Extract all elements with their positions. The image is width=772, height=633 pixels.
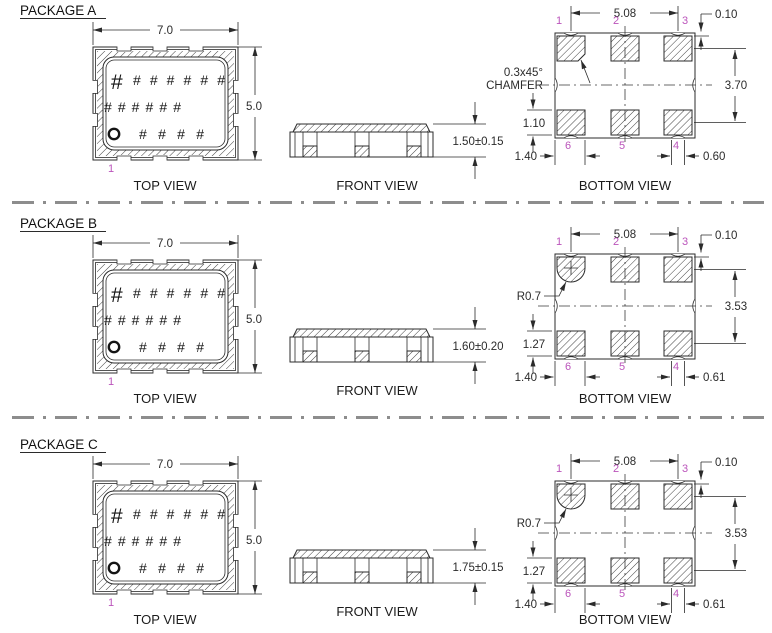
marking-row2: # # # # # # (104, 312, 181, 328)
dim-edge-offset: 0.10 (715, 457, 737, 469)
lid-front (293, 124, 430, 132)
pin-label-3: 3 (682, 15, 688, 27)
package-b-section: PACKAGE B 7.0 5.0 (0, 205, 772, 420)
front-view: 1.60±0.20 FRONT VIEW (290, 307, 504, 398)
dim-pad-height: 1.10 (523, 118, 545, 130)
pin-label-5: 5 (619, 361, 625, 373)
package-title: PACKAGE A (20, 3, 96, 18)
dim-body-height: 5.0 (246, 101, 262, 113)
pin-label-1: 1 (556, 15, 562, 27)
top-view-caption: TOP VIEW (133, 612, 197, 627)
front-view-caption: FRONT VIEW (336, 178, 418, 193)
pin1-label: 1 (108, 376, 114, 388)
dim-edge-offset: 0.10 (715, 9, 737, 21)
pin-label-1: 1 (556, 463, 562, 475)
package-title: PACKAGE B (20, 216, 97, 231)
pin-label-4: 4 (673, 140, 679, 152)
bottom-view: 5.08 1 2 3 0.10 3.70 1.10 (486, 6, 747, 193)
dim-row-pitch: 3.53 (725, 301, 747, 313)
pin-label-2: 2 (613, 15, 619, 27)
bottom-view-drawing: 5.08 1 2 3 0.10 3.53 1.27 (515, 454, 748, 613)
dim-body-width: 7.0 (157, 238, 173, 250)
package-b-content: PACKAGE B 7.0 5.0 (20, 216, 747, 406)
marking-row1: # # # # # # (133, 72, 225, 88)
bottom-view: 5.08 1 2 3 0.10 3.53 1.27 (515, 227, 748, 406)
bottom-view-caption: BOTTOM VIEW (579, 178, 672, 193)
marking-hash-large: # (111, 284, 123, 307)
bottom-view-drawing: 5.08 1 2 3 0.10 3.70 1.10 (486, 6, 747, 165)
front-view-caption: FRONT VIEW (336, 604, 418, 619)
marking-row1: # # # # # # (133, 285, 225, 301)
top-view: 7.0 5.0 (92, 456, 262, 627)
pin-label-5: 5 (619, 140, 625, 152)
bottom-view-drawing: 5.08 1 2 3 0.10 3.53 1.27 (515, 227, 748, 386)
bottom-view: 5.08 1 2 3 0.10 3.53 1.27 (515, 454, 748, 627)
feature-label-line1: 0.3x45° (504, 67, 543, 79)
dim-notch-width: 0.60 (703, 151, 725, 163)
pin-label-6: 6 (565, 140, 571, 152)
section-separator-line (12, 416, 764, 419)
package-c-content: PACKAGE C 7.0 5.0 (20, 437, 747, 627)
pin-label-4: 4 (673, 588, 679, 600)
dim-corner-pad: 1.40 (515, 599, 537, 611)
pin1-label: 1 (108, 163, 114, 175)
pin-label-5: 5 (619, 588, 625, 600)
dim-pad-height: 1.27 (523, 566, 545, 578)
marking-row1: # # # # # # (133, 506, 225, 522)
pin-label-3: 3 (682, 463, 688, 475)
dim-row-pitch: 3.70 (725, 80, 747, 92)
pin-label-6: 6 (565, 361, 571, 373)
top-view-caption: TOP VIEW (133, 178, 197, 193)
dim-row-pitch: 3.53 (725, 528, 747, 540)
marking-row2: # # # # # # (104, 533, 181, 549)
dim-notch-width: 0.61 (703, 372, 725, 384)
section-separator-line (12, 201, 764, 204)
front-view-caption: FRONT VIEW (336, 383, 418, 398)
dim-body-height: 5.0 (246, 314, 262, 326)
bottom-view-caption: BOTTOM VIEW (579, 612, 672, 627)
pin-label-1: 1 (556, 236, 562, 248)
dim-body-width: 7.0 (157, 25, 173, 37)
front-view: 1.50±0.15 FRONT VIEW (290, 102, 504, 193)
dim-corner-pad: 1.40 (515, 151, 537, 163)
pin1-label: 1 (108, 597, 114, 609)
marking-row2: # # # # # # (104, 99, 181, 115)
package-a-section: PACKAGE A 7.0 5.0 (0, 0, 772, 205)
top-view-caption: TOP VIEW (133, 391, 197, 406)
top-view: 7.0 5.0 (92, 22, 262, 193)
dim-corner-pad: 1.40 (515, 372, 537, 384)
dim-edge-offset: 0.10 (715, 230, 737, 242)
pin-label-6: 6 (565, 588, 571, 600)
drawing-canvas: PACKAGE A 7.0 5.0 (0, 0, 772, 633)
pad-1-chamfered (557, 36, 585, 61)
lid-front (293, 550, 430, 558)
top-view: 7.0 5.0 (92, 235, 262, 406)
dim-height: 1.50±0.15 (452, 136, 503, 148)
dim-notch-width: 0.61 (703, 599, 725, 611)
dim-height: 1.75±0.15 (452, 562, 503, 574)
dim-body-height: 5.0 (246, 535, 262, 547)
front-view: 1.75±0.15 FRONT VIEW (290, 528, 504, 619)
pin-label-4: 4 (673, 361, 679, 373)
package-a-content: PACKAGE A 7.0 5.0 (20, 3, 747, 193)
dim-pad-height: 1.27 (523, 339, 545, 351)
pin-label-2: 2 (613, 236, 619, 248)
feature-label-line1: R0.7 (517, 518, 541, 530)
dim-body-width: 7.0 (157, 459, 173, 471)
marking-hash-large: # (111, 505, 123, 528)
package-title: PACKAGE C (20, 437, 98, 452)
pin-label-2: 2 (613, 463, 619, 475)
feature-label-line2: CHAMFER (486, 80, 543, 92)
feature-label-line1: R0.7 (517, 291, 541, 303)
pin-label-3: 3 (682, 236, 688, 248)
bottom-view-caption: BOTTOM VIEW (579, 391, 672, 406)
dim-height: 1.60±0.20 (452, 341, 503, 353)
marking-hash-large: # (111, 71, 123, 94)
lid-front (293, 329, 430, 337)
package-c-section: PACKAGE C 7.0 5.0 (0, 420, 772, 633)
